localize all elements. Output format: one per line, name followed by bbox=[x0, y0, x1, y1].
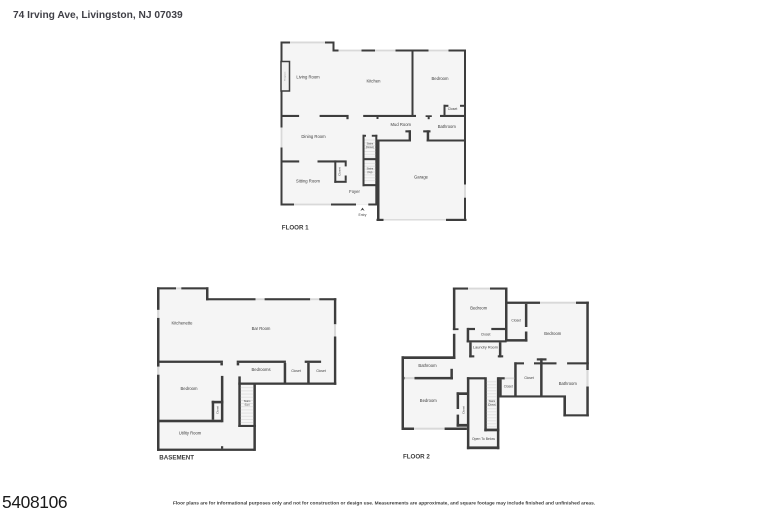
svg-text:(Up): (Up) bbox=[367, 170, 372, 174]
svg-text:74 Irving Ave, Livingston, NJ: 74 Irving Ave, Livingston, NJ 07039 bbox=[13, 10, 183, 21]
svg-text:Closet: Closet bbox=[511, 319, 521, 323]
svg-text:Kitchen: Kitchen bbox=[367, 79, 382, 84]
svg-text:Closet: Closet bbox=[316, 369, 326, 373]
svg-text:Bedroom: Bedroom bbox=[470, 305, 488, 310]
svg-text:Dining Room: Dining Room bbox=[301, 134, 326, 139]
svg-text:Floor plans are for informatio: Floor plans are for informational purpos… bbox=[173, 500, 596, 506]
svg-text:Bar Room: Bar Room bbox=[252, 326, 271, 331]
svg-text:Closet: Closet bbox=[504, 385, 513, 389]
svg-text:Stairs: Stairs bbox=[489, 399, 496, 403]
svg-text:Bedrooms: Bedrooms bbox=[251, 367, 270, 372]
svg-text:Stairs: Stairs bbox=[367, 142, 374, 146]
svg-text:Closet: Closet bbox=[481, 333, 491, 337]
svg-text:(Up): (Up) bbox=[245, 403, 250, 407]
svg-text:Closet: Closet bbox=[291, 369, 301, 373]
svg-text:Mud Room: Mud Room bbox=[391, 122, 412, 127]
svg-text:Fireplace: Fireplace bbox=[284, 71, 287, 81]
svg-text:Bedroom: Bedroom bbox=[432, 76, 450, 81]
svg-text:Closet: Closet bbox=[338, 167, 342, 176]
svg-text:Closet: Closet bbox=[461, 406, 465, 414]
svg-text:FLOOR 2: FLOOR 2 bbox=[403, 454, 430, 461]
svg-text:Closet: Closet bbox=[448, 107, 458, 111]
svg-text:FLOOR 1: FLOOR 1 bbox=[282, 225, 309, 232]
svg-text:Living Room: Living Room bbox=[296, 75, 320, 80]
svg-text:Kitchenette: Kitchenette bbox=[172, 320, 194, 325]
svg-text:Closet: Closet bbox=[524, 376, 534, 380]
svg-text:Stairs: Stairs bbox=[244, 399, 251, 403]
svg-text:Utility Room: Utility Room bbox=[179, 431, 202, 436]
svg-text:5408106: 5408106 bbox=[2, 492, 67, 512]
svg-text:Bathroom: Bathroom bbox=[438, 124, 457, 129]
svg-text:(Down): (Down) bbox=[366, 145, 374, 149]
svg-text:Closet: Closet bbox=[215, 406, 219, 414]
svg-text:Bedroom: Bedroom bbox=[420, 398, 438, 403]
svg-text:Sitting Room: Sitting Room bbox=[296, 179, 320, 184]
svg-text:Garage: Garage bbox=[414, 175, 429, 180]
svg-text:Bathroom: Bathroom bbox=[418, 363, 437, 368]
svg-text:Open To Below: Open To Below bbox=[472, 437, 495, 441]
svg-text:Stairs: Stairs bbox=[367, 167, 374, 171]
svg-text:Bathroom: Bathroom bbox=[559, 381, 578, 386]
svg-text:(Down): (Down) bbox=[488, 403, 496, 407]
svg-text:Foyer: Foyer bbox=[349, 189, 360, 194]
svg-text:BASEMENT: BASEMENT bbox=[159, 454, 194, 461]
svg-text:Bedroom: Bedroom bbox=[544, 331, 562, 336]
svg-text:Laundry Room: Laundry Room bbox=[473, 346, 498, 350]
svg-text:Bedroom: Bedroom bbox=[181, 386, 199, 391]
svg-text:Entry: Entry bbox=[359, 213, 367, 217]
